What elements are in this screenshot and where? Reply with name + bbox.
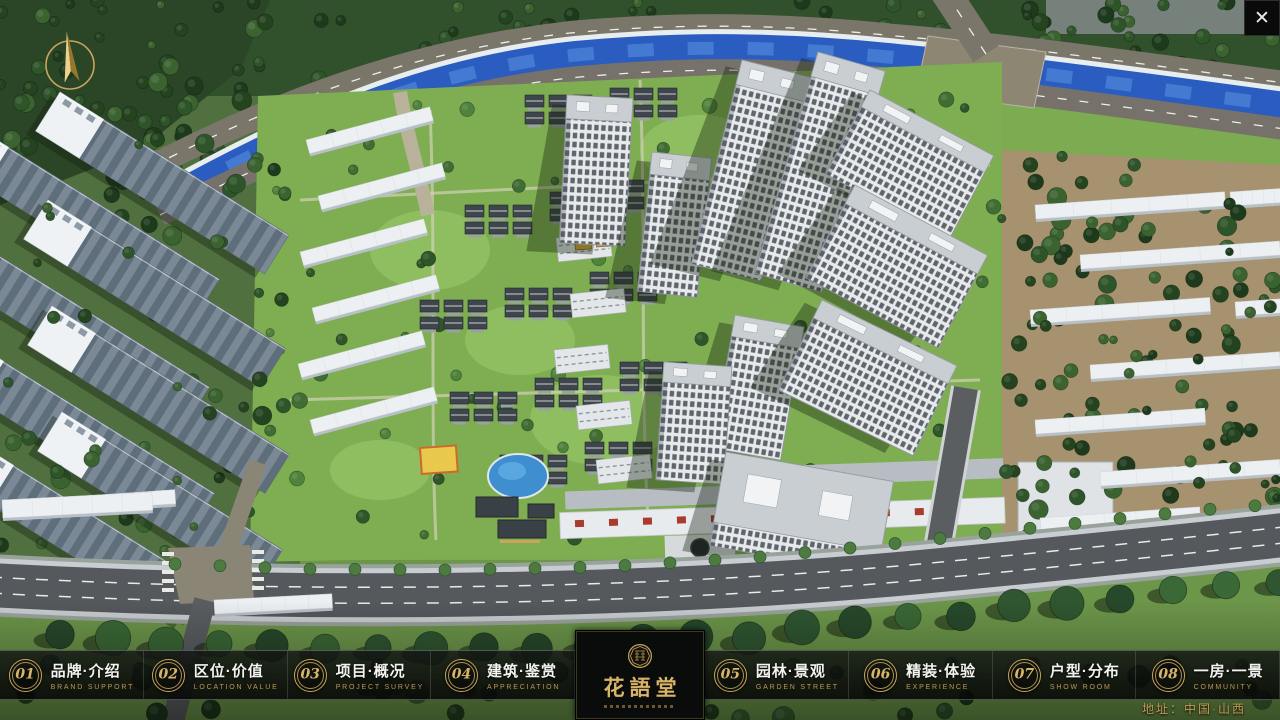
close-button[interactable]: ✕ — [1244, 0, 1280, 36]
nav-group-left: 01 品牌·介绍 BRAND SUPPORT 02 区位·价值 LOCATION… — [0, 651, 575, 699]
nav-number-badge: 04 — [445, 659, 478, 692]
project-logo-button[interactable]: 花語堂 — [575, 630, 705, 720]
seal-emblem-icon — [627, 643, 653, 669]
nav-label-en: COMMUNITY — [1194, 684, 1253, 691]
scene-svg — [0, 0, 1280, 720]
nav-item-decoration-experience[interactable]: 06 精装·体验 EXPERIENCE — [849, 651, 993, 699]
logo-title: 花語堂 — [599, 672, 682, 702]
nav-label-zh: 园林·景观 — [756, 660, 826, 681]
project-address-label: 地址：中国·山西 — [1142, 700, 1246, 717]
bottom-nav-bar: 01 品牌·介绍 BRAND SUPPORT 02 区位·价值 LOCATION… — [0, 650, 1280, 700]
nav-label-en: EXPERIENCE — [906, 684, 969, 691]
aerial-masterplan-scene[interactable] — [0, 0, 1280, 720]
nav-item-room-view[interactable]: 08 一房·一景 COMMUNITY — [1136, 651, 1280, 699]
close-icon: ✕ — [1254, 9, 1270, 28]
nav-number-badge: 07 — [1008, 659, 1041, 692]
nav-item-brand-intro[interactable]: 01 品牌·介绍 BRAND SUPPORT — [0, 651, 144, 699]
nav-label-zh: 项目·概况 — [336, 660, 406, 681]
nav-item-location-value[interactable]: 02 区位·价值 LOCATION VALUE — [144, 651, 288, 699]
logo-subtext — [604, 705, 676, 708]
nav-label-en: GARDEN STREET — [756, 684, 839, 691]
nav-label-zh: 一房·一景 — [1194, 660, 1264, 681]
nav-item-landscape[interactable]: 05 园林·景观 GARDEN STREET — [705, 651, 849, 699]
nav-group-right: 05 园林·景观 GARDEN STREET 06 精装·体验 EXPERIEN… — [705, 651, 1280, 699]
nav-label-zh: 户型·分布 — [1050, 660, 1120, 681]
nav-number-badge: 01 — [9, 659, 42, 692]
nav-number-badge: 05 — [714, 659, 747, 692]
sales-presentation-window: ✕ 01 品牌·介绍 BRAND SUPPORT 02 区位·价值 LOCATI… — [0, 0, 1280, 720]
nav-label-zh: 精装·体验 — [906, 660, 976, 681]
nav-number-badge: 06 — [864, 659, 897, 692]
compass-icon — [32, 24, 108, 100]
nav-label-en: PROJECT SURVEY — [336, 684, 424, 691]
nav-label-zh: 区位·价值 — [194, 660, 264, 681]
nav-number-badge: 03 — [294, 659, 327, 692]
nav-label-en: SHOW ROOM — [1050, 684, 1112, 691]
nav-item-project-overview[interactable]: 03 项目·概况 PROJECT SURVEY — [288, 651, 432, 699]
nav-label-en: BRAND SUPPORT — [51, 684, 135, 691]
nav-number-badge: 08 — [1152, 659, 1185, 692]
nav-label-zh: 品牌·介绍 — [51, 660, 121, 681]
nav-item-floorplan-distribution[interactable]: 07 户型·分布 SHOW ROOM — [993, 651, 1137, 699]
nav-number-badge: 02 — [152, 659, 185, 692]
nav-label-en: APPRECIATION — [487, 684, 560, 691]
nav-label-zh: 建筑·鉴赏 — [487, 660, 557, 681]
nav-label-en: LOCATION VALUE — [194, 684, 279, 691]
nav-item-architecture[interactable]: 04 建筑·鉴赏 APPRECIATION — [431, 651, 575, 699]
